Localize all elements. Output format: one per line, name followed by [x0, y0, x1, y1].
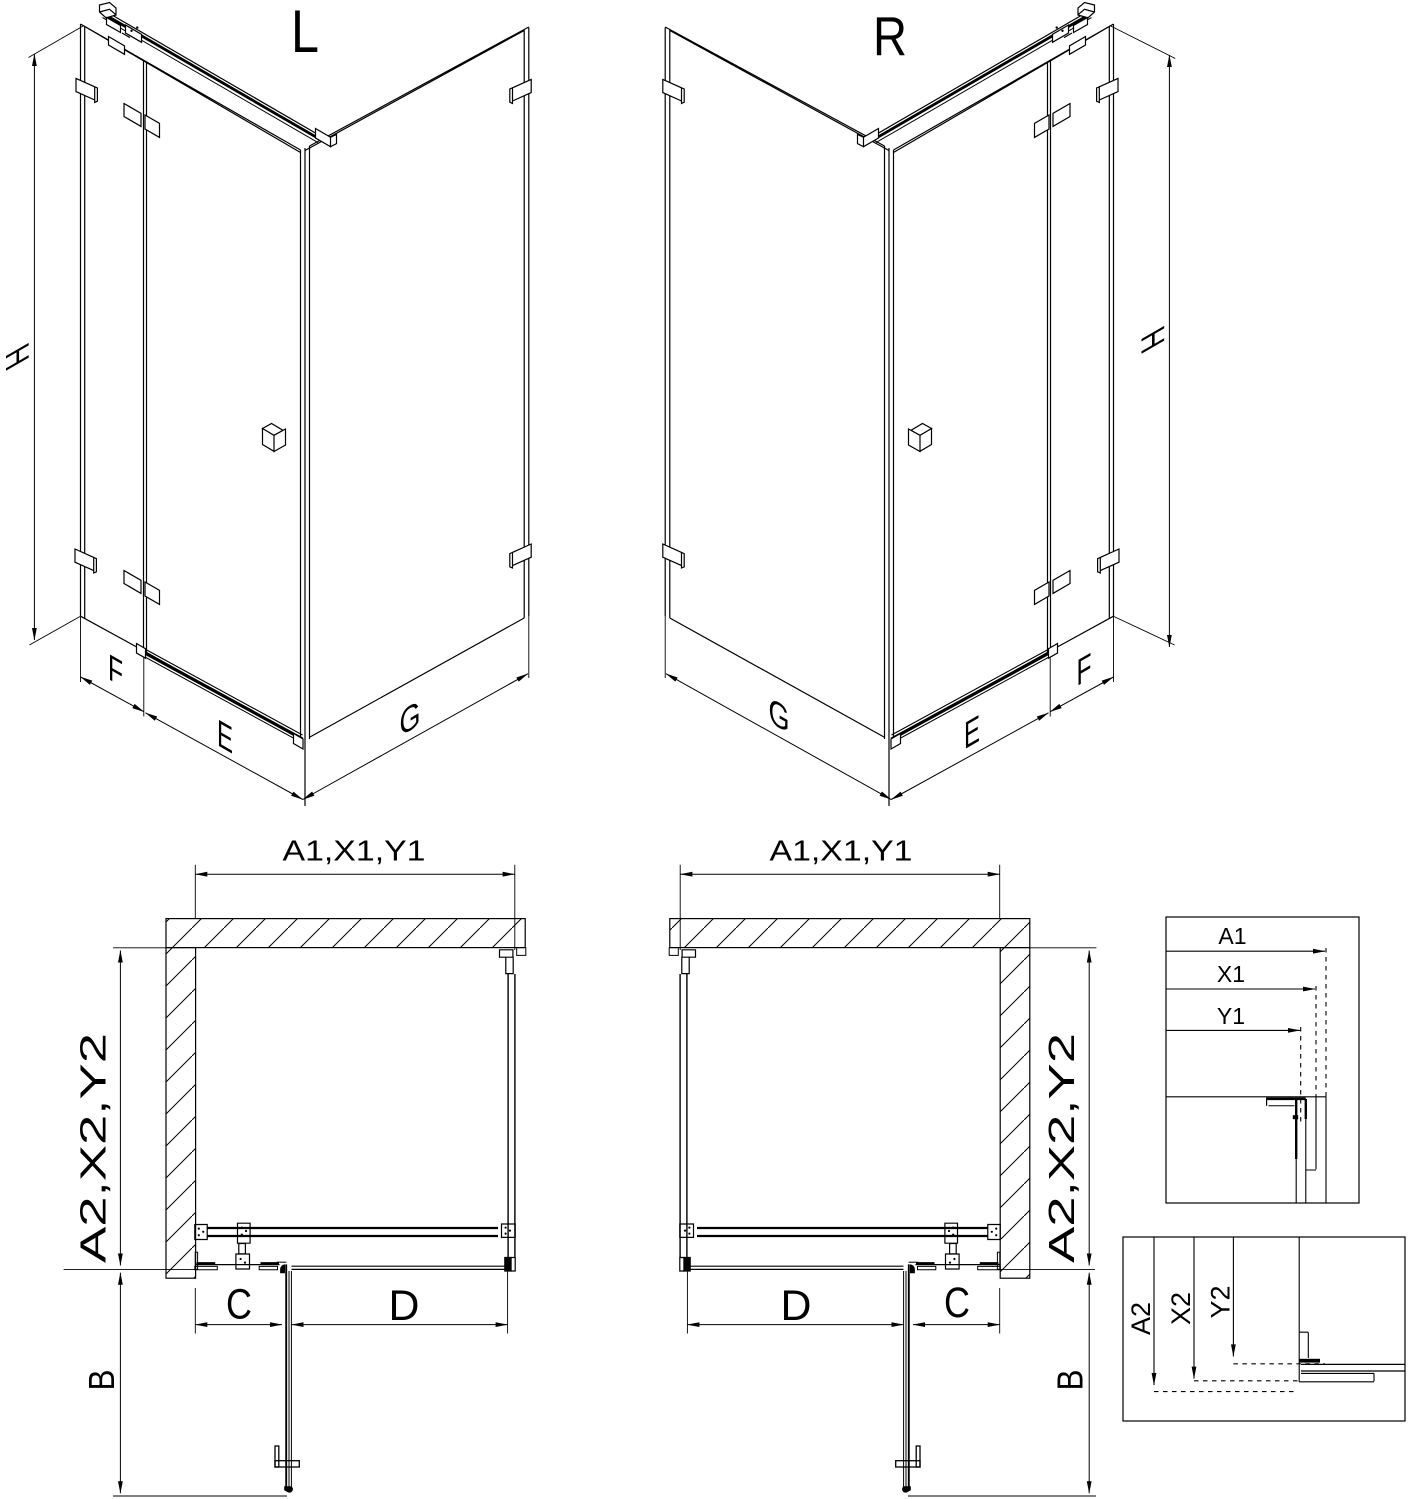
svg-text:A2,X2,Y2: A2,X2,Y2: [1041, 1033, 1082, 1263]
svg-text:B: B: [81, 1370, 122, 1391]
svg-text:X2: X2: [1166, 1292, 1196, 1325]
svg-text:D: D: [781, 1282, 812, 1330]
svg-text:F: F: [108, 646, 123, 695]
svg-text:A1: A1: [1218, 923, 1246, 949]
svg-text:C: C: [944, 1279, 970, 1327]
svg-text:A1,X1,Y1: A1,X1,Y1: [770, 836, 913, 868]
svg-text:Y1: Y1: [1217, 1003, 1245, 1029]
svg-text:D: D: [389, 1282, 420, 1330]
svg-text:C: C: [226, 1281, 252, 1329]
svg-text:R: R: [873, 5, 907, 67]
svg-text:X1: X1: [1217, 961, 1245, 987]
svg-text:L: L: [291, 0, 319, 65]
svg-text:A2: A2: [1126, 1302, 1156, 1335]
svg-text:Y2: Y2: [1206, 1285, 1236, 1318]
svg-text:B: B: [1050, 1370, 1091, 1391]
svg-text:F: F: [1077, 645, 1092, 694]
svg-text:A2,X2,Y2: A2,X2,Y2: [73, 1033, 114, 1263]
svg-text:A1,X1,Y1: A1,X1,Y1: [283, 836, 426, 868]
